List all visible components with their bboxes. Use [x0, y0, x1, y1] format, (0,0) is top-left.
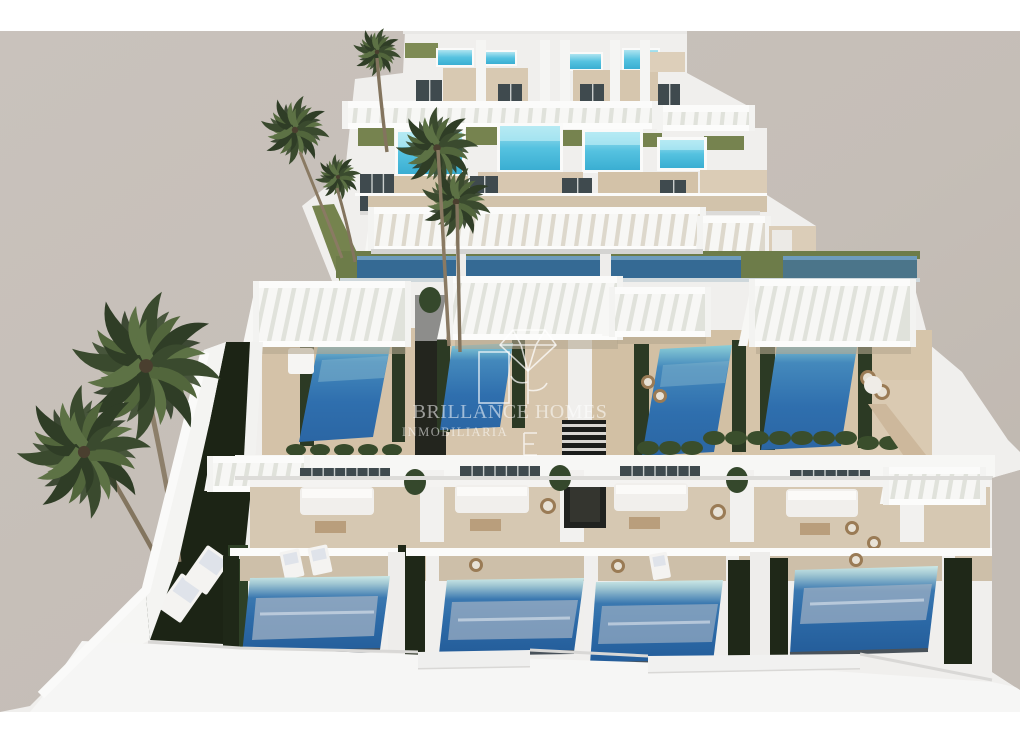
svg-text:BRILLANCE HOMES: BRILLANCE HOMES — [413, 401, 608, 423]
svg-text:INMOBILIARIA: INMOBILIARIA — [402, 425, 508, 439]
